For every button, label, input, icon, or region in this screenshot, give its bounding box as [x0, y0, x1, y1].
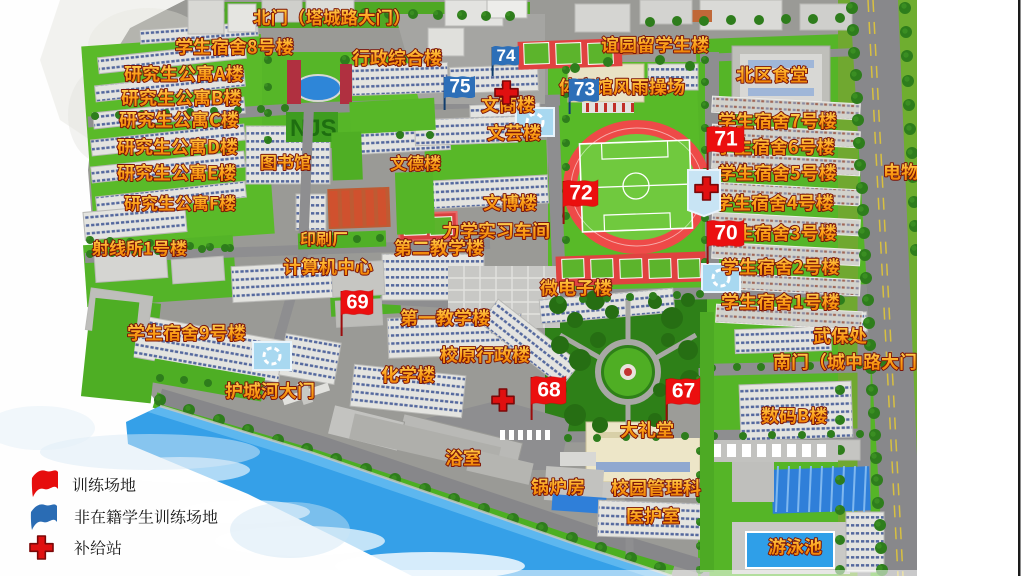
svg-text:67: 67 — [672, 380, 695, 403]
svg-text:71: 71 — [714, 128, 738, 151]
svg-text:72: 72 — [569, 182, 592, 205]
svg-text:74: 74 — [497, 46, 516, 65]
svg-text:69: 69 — [346, 292, 368, 314]
svg-text:75: 75 — [449, 77, 471, 98]
svg-text:68: 68 — [537, 379, 561, 402]
svg-text:70: 70 — [714, 222, 737, 245]
svg-text:73: 73 — [574, 80, 595, 101]
